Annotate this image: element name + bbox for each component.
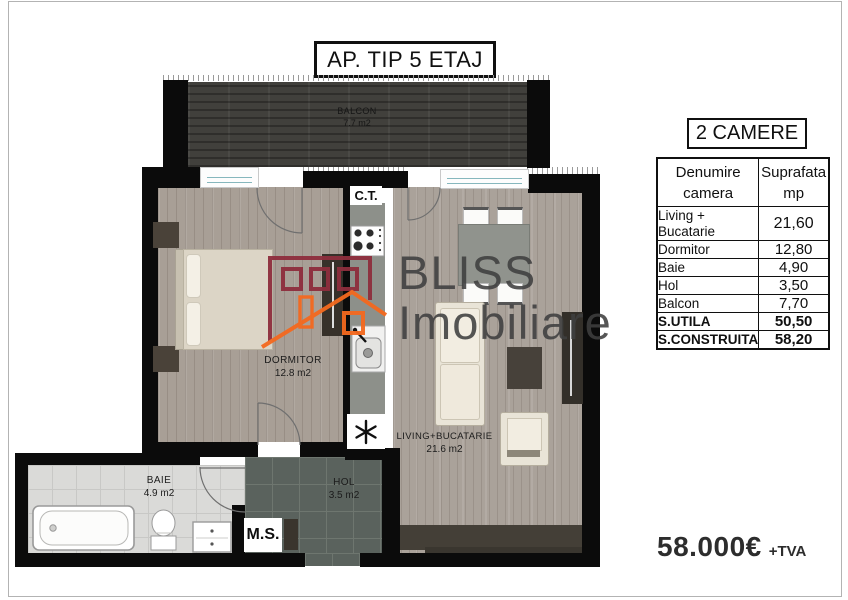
- wall-top-right-block: [528, 174, 600, 193]
- header-value-line2: mp: [759, 183, 828, 204]
- table-row: Dormitor 12,80: [657, 241, 829, 259]
- rooms-count-label: 2 CAMERE: [696, 122, 798, 145]
- balcony-name: BALCON: [307, 105, 407, 117]
- row-name: Hol: [657, 277, 759, 295]
- row-name: Baie: [657, 259, 759, 277]
- table-row: Baie 4,90: [657, 259, 829, 277]
- header-name-line1: Denumire: [658, 162, 758, 183]
- bedroom-name: DORMITOR: [243, 354, 343, 367]
- header-value-cell: Suprafata mp: [759, 158, 829, 207]
- wall-balcony-right: [527, 80, 550, 168]
- balcony-label: BALCON 7.7 m2: [307, 105, 407, 129]
- entrance-threshold: [305, 553, 360, 566]
- row-name: S.UTILA: [657, 313, 759, 331]
- page-title-text: AP. TIP 5 ETAJ: [327, 47, 483, 73]
- bathroom-name: BAIE: [109, 474, 209, 487]
- hall-cabinet: [284, 519, 298, 550]
- coffee-table: [507, 347, 542, 389]
- areas-table: Denumire camera Suprafata mp Living + Bu…: [656, 157, 830, 350]
- wall-bath-top: [15, 453, 200, 465]
- watermark-line2: Imobiliare: [398, 298, 612, 348]
- table-row: Hol 3,50: [657, 277, 829, 295]
- price-amount: 58.000€: [657, 531, 762, 562]
- table-row: Living + Bucatarie 21,60: [657, 207, 829, 241]
- row-name: Balcon: [657, 295, 759, 313]
- living-name: LIVING+BUCATARIE: [392, 430, 497, 443]
- wall-bottom-left: [15, 553, 305, 567]
- pillow-bottom: [186, 302, 201, 346]
- watermark-line1: BLISS: [398, 248, 612, 298]
- table-row-total-built: S.CONSTRUITA 58,20: [657, 331, 829, 350]
- balcony-area: 7.7 m2: [307, 117, 407, 129]
- table-row: Balcon 7,70: [657, 295, 829, 313]
- wall-balcony-left: [163, 80, 188, 175]
- washing-machine-label: M.S.: [247, 526, 280, 544]
- living-wardrobe-edge: [425, 547, 582, 553]
- bedroom-area: 12.8 m2: [243, 367, 343, 380]
- header-value-line1: Suprafata: [759, 162, 828, 183]
- balcony-sill-hatch: [163, 75, 550, 81]
- row-name: S.CONSTRUITA: [657, 331, 759, 350]
- living-window-glass: [447, 178, 522, 184]
- hallway-label: HOL 3.5 m2: [294, 476, 394, 502]
- row-value: 50,50: [759, 313, 829, 331]
- hallway-area: 3.5 m2: [294, 489, 394, 502]
- bedroom-window-glass: [207, 177, 252, 183]
- pillow-top: [186, 254, 201, 298]
- row-name: Living + Bucatarie: [657, 207, 759, 241]
- row-value: 12,80: [759, 241, 829, 259]
- armchair-seat: [507, 418, 542, 451]
- areas-table-header: Denumire camera Suprafata mp: [657, 158, 829, 207]
- boiler-box: C.T.: [350, 186, 382, 205]
- nightstand-top: [153, 222, 179, 248]
- right-sill-hatch: [527, 167, 600, 174]
- row-value: 7,70: [759, 295, 829, 313]
- kitchen-symbol-box: [347, 414, 385, 449]
- hallway-name: HOL: [294, 476, 394, 489]
- page-title: AP. TIP 5 ETAJ: [314, 41, 496, 78]
- living-label: LIVING+BUCATARIE 21.6 m2: [392, 430, 497, 456]
- sofa-cushion-bottom: [440, 364, 480, 420]
- price: 58.000€+TVA: [657, 531, 806, 563]
- row-value: 58,20: [759, 331, 829, 350]
- floorplan-page: AP. TIP 5 ETAJ C.T.: [0, 0, 848, 600]
- wall-bedroom-bottom-b: [300, 442, 347, 457]
- agency-watermark: BLISS Imobiliare: [398, 248, 612, 348]
- price-vat-suffix: +TVA: [769, 543, 807, 560]
- header-name-cell: Denumire camera: [657, 158, 759, 207]
- bedroom-wardrobe-handle: [332, 262, 334, 328]
- boiler-label: C.T.: [354, 188, 377, 203]
- wall-hall-living: [382, 448, 400, 567]
- row-value: 3,50: [759, 277, 829, 295]
- washing-machine-box: M.S.: [244, 518, 282, 552]
- wall-bath-left: [15, 453, 28, 566]
- living-window: [440, 169, 529, 189]
- row-value: 4,90: [759, 259, 829, 277]
- header-name-line2: camera: [658, 183, 758, 204]
- armchair-footline: [507, 450, 540, 457]
- row-value: 21,60: [759, 207, 829, 241]
- bathroom-label: BAIE 4.9 m2: [109, 474, 209, 500]
- bathroom-area: 4.9 m2: [109, 487, 209, 500]
- row-name: Dormitor: [657, 241, 759, 259]
- table-row-total-usable: S.UTILA 50,50: [657, 313, 829, 331]
- living-area: 21.6 m2: [392, 443, 497, 456]
- bedroom-window: [200, 167, 259, 188]
- bedroom-label: DORMITOR 12.8 m2: [243, 354, 343, 380]
- wall-top-left: [142, 167, 202, 188]
- wall-bottom-right: [360, 553, 600, 567]
- rooms-count-box: 2 CAMERE: [687, 118, 807, 149]
